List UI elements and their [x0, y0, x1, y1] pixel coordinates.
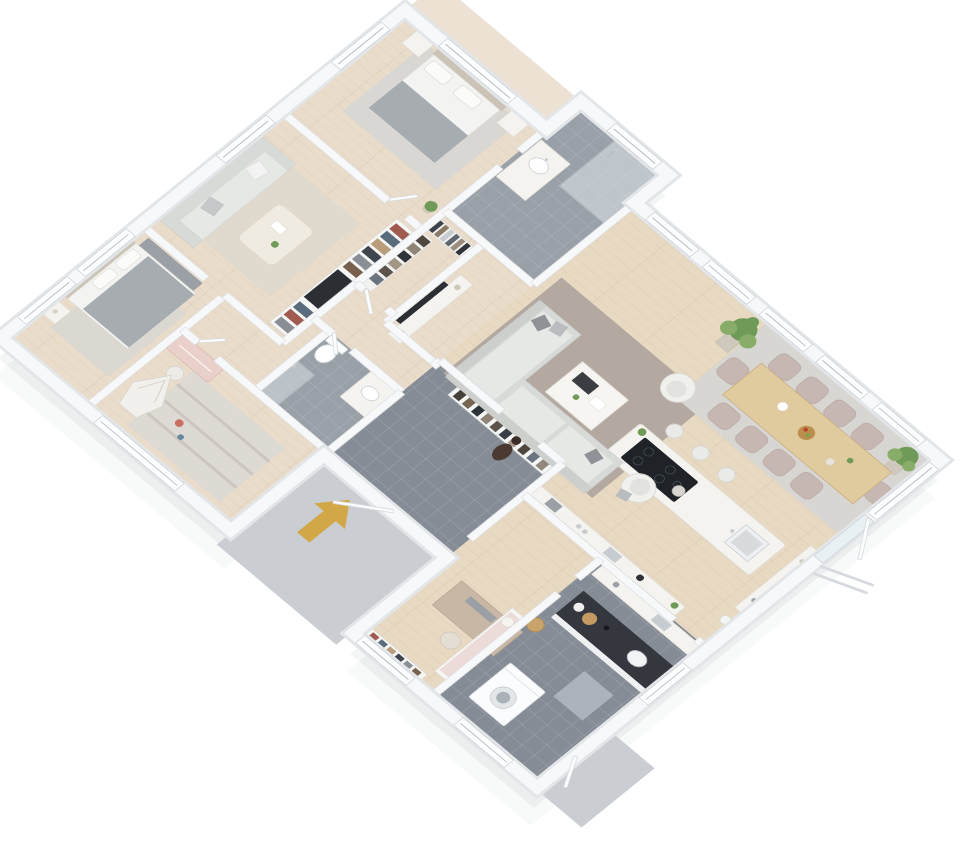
floorplan-svg — [0, 0, 960, 860]
floorplan-render — [0, 0, 960, 860]
